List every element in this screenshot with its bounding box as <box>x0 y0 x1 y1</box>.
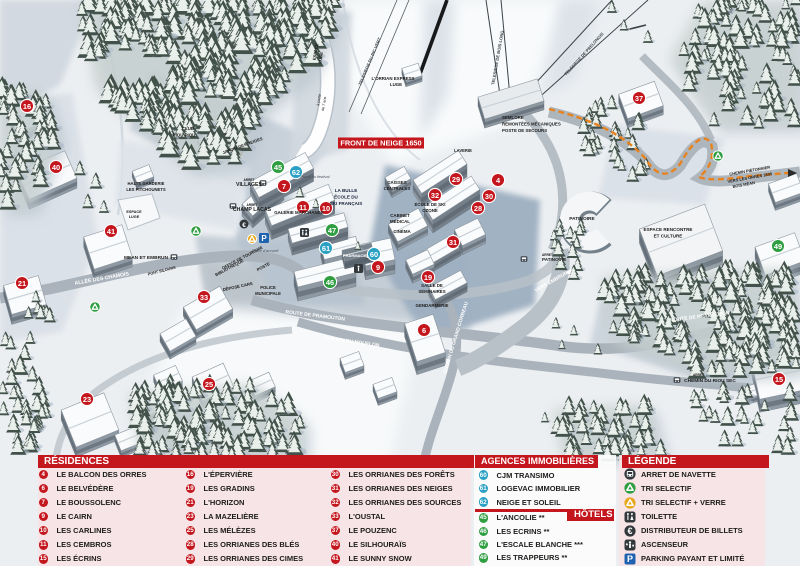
svg-text:P: P <box>627 554 633 564</box>
svg-text:49: 49 <box>774 242 782 251</box>
svg-text:23: 23 <box>83 395 91 404</box>
svg-text:SKI FRANÇAIS: SKI FRANÇAIS <box>330 201 363 206</box>
svg-text:PIOU PIOU: PIOU PIOU <box>173 133 196 138</box>
svg-text:15: 15 <box>775 375 783 384</box>
svg-text:6: 6 <box>422 326 426 335</box>
svg-text:GENDARMERIE: GENDARMERIE <box>416 303 449 308</box>
svg-text:ÉCOLE DE SKI: ÉCOLE DE SKI <box>415 202 446 207</box>
svg-text:LUGE: LUGE <box>129 215 140 219</box>
svg-text:16: 16 <box>23 102 31 111</box>
svg-text:P: P <box>261 234 267 243</box>
svg-text:9: 9 <box>376 263 380 272</box>
svg-text:CABINET: CABINET <box>390 213 410 218</box>
svg-text:GALERIE MARCHANDE: GALERIE MARCHANDE <box>274 210 324 215</box>
svg-text:32: 32 <box>431 191 439 200</box>
svg-text:VILLAGES: VILLAGES <box>236 182 262 188</box>
svg-text:Place d'accueil: Place d'accueil <box>252 248 279 253</box>
svg-text:CAISSES: CAISSES <box>387 180 406 185</box>
svg-text:€: € <box>242 222 246 229</box>
svg-text:ESPACE: ESPACE <box>126 210 142 214</box>
svg-text:SEMLORE: SEMLORE <box>502 115 524 120</box>
svg-text:POSTE DE SECOURS: POSTE DE SECOURS <box>502 128 547 133</box>
svg-text:40: 40 <box>52 163 60 172</box>
svg-text:21: 21 <box>18 279 26 288</box>
svg-text:ESPACE RENCONTRE: ESPACE RENCONTRE <box>644 227 693 232</box>
svg-text:ARRET: ARRET <box>244 178 255 182</box>
svg-text:CENTRALES: CENTRALES <box>384 186 411 191</box>
svg-text:28: 28 <box>474 204 482 213</box>
svg-text:FRONT DE NEIGE 1650: FRONT DE NEIGE 1650 <box>340 139 421 148</box>
svg-text:ET CULTURE: ET CULTURE <box>654 234 683 239</box>
svg-text:CLUB: CLUB <box>182 126 194 131</box>
svg-text:ARRET: ARRET <box>693 373 704 377</box>
svg-text:LUGE: LUGE <box>390 82 402 87</box>
svg-text:HALTE GARDERIE: HALTE GARDERIE <box>128 181 165 186</box>
svg-text:LAVERIE: LAVERIE <box>454 148 472 153</box>
svg-text:L'ORRIAN EXPRESS: L'ORRIAN EXPRESS <box>371 76 414 81</box>
svg-text:33: 33 <box>200 293 208 302</box>
svg-text:7: 7 <box>282 182 286 191</box>
svg-text:SÉMINAIRES: SÉMINAIRES <box>418 289 445 294</box>
svg-text:MÉDICAL: MÉDICAL <box>390 219 410 224</box>
svg-text:CHAMP LACAS: CHAMP LACAS <box>233 207 272 213</box>
svg-text:25: 25 <box>205 380 213 389</box>
svg-text:60: 60 <box>370 250 378 259</box>
svg-text:PATINOIRE: PATINOIRE <box>542 257 566 262</box>
svg-text:ÉCOLE DU: ÉCOLE DU <box>334 193 358 200</box>
svg-text:€: € <box>627 526 632 536</box>
svg-text:OZONE: OZONE <box>422 208 438 213</box>
svg-text:PHARMACIE: PHARMACIE <box>343 253 368 258</box>
svg-text:47: 47 <box>328 226 336 235</box>
svg-text:LES PITCHOUNETS: LES PITCHOUNETS <box>126 187 166 192</box>
svg-text:19: 19 <box>424 273 432 282</box>
svg-text:Place du festival: Place du festival <box>300 174 329 179</box>
svg-text:MUNICIPALE: MUNICIPALE <box>255 291 281 296</box>
svg-text:PATINOIRE: PATINOIRE <box>569 216 595 222</box>
svg-text:ARRET: ARRET <box>542 253 553 257</box>
svg-text:62: 62 <box>292 168 300 177</box>
svg-text:LA BULLE: LA BULLE <box>335 188 358 193</box>
svg-text:29: 29 <box>452 175 460 184</box>
svg-text:41: 41 <box>107 227 115 236</box>
svg-text:SALLE DE: SALLE DE <box>421 283 443 288</box>
svg-text:POLICE: POLICE <box>260 285 276 290</box>
svg-text:CINÉMA: CINÉMA <box>393 229 411 234</box>
svg-text:61: 61 <box>322 244 330 253</box>
svg-text:45: 45 <box>274 163 282 172</box>
svg-text:37: 37 <box>635 94 643 103</box>
svg-text:CHEMIN DU RIOU SEC: CHEMIN DU RIOU SEC <box>684 378 736 384</box>
svg-text:31: 31 <box>449 238 457 247</box>
svg-text:ARRET: ARRET <box>247 203 258 207</box>
svg-text:46: 46 <box>326 278 334 287</box>
svg-text:MEAN ET EMBRUN: MEAN ET EMBRUN <box>124 255 169 261</box>
svg-text:30: 30 <box>485 192 493 201</box>
svg-text:REMONTÉES MÉCANIQUES: REMONTÉES MÉCANIQUES <box>502 122 561 127</box>
